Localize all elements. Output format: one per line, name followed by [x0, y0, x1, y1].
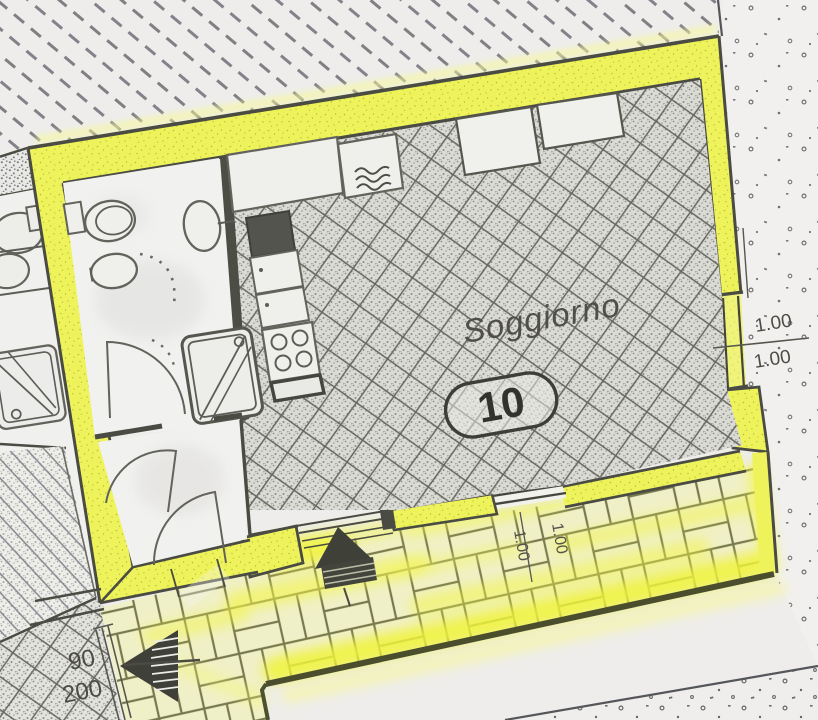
svg-text:90: 90: [66, 644, 97, 676]
svg-text:10: 10: [474, 377, 528, 431]
